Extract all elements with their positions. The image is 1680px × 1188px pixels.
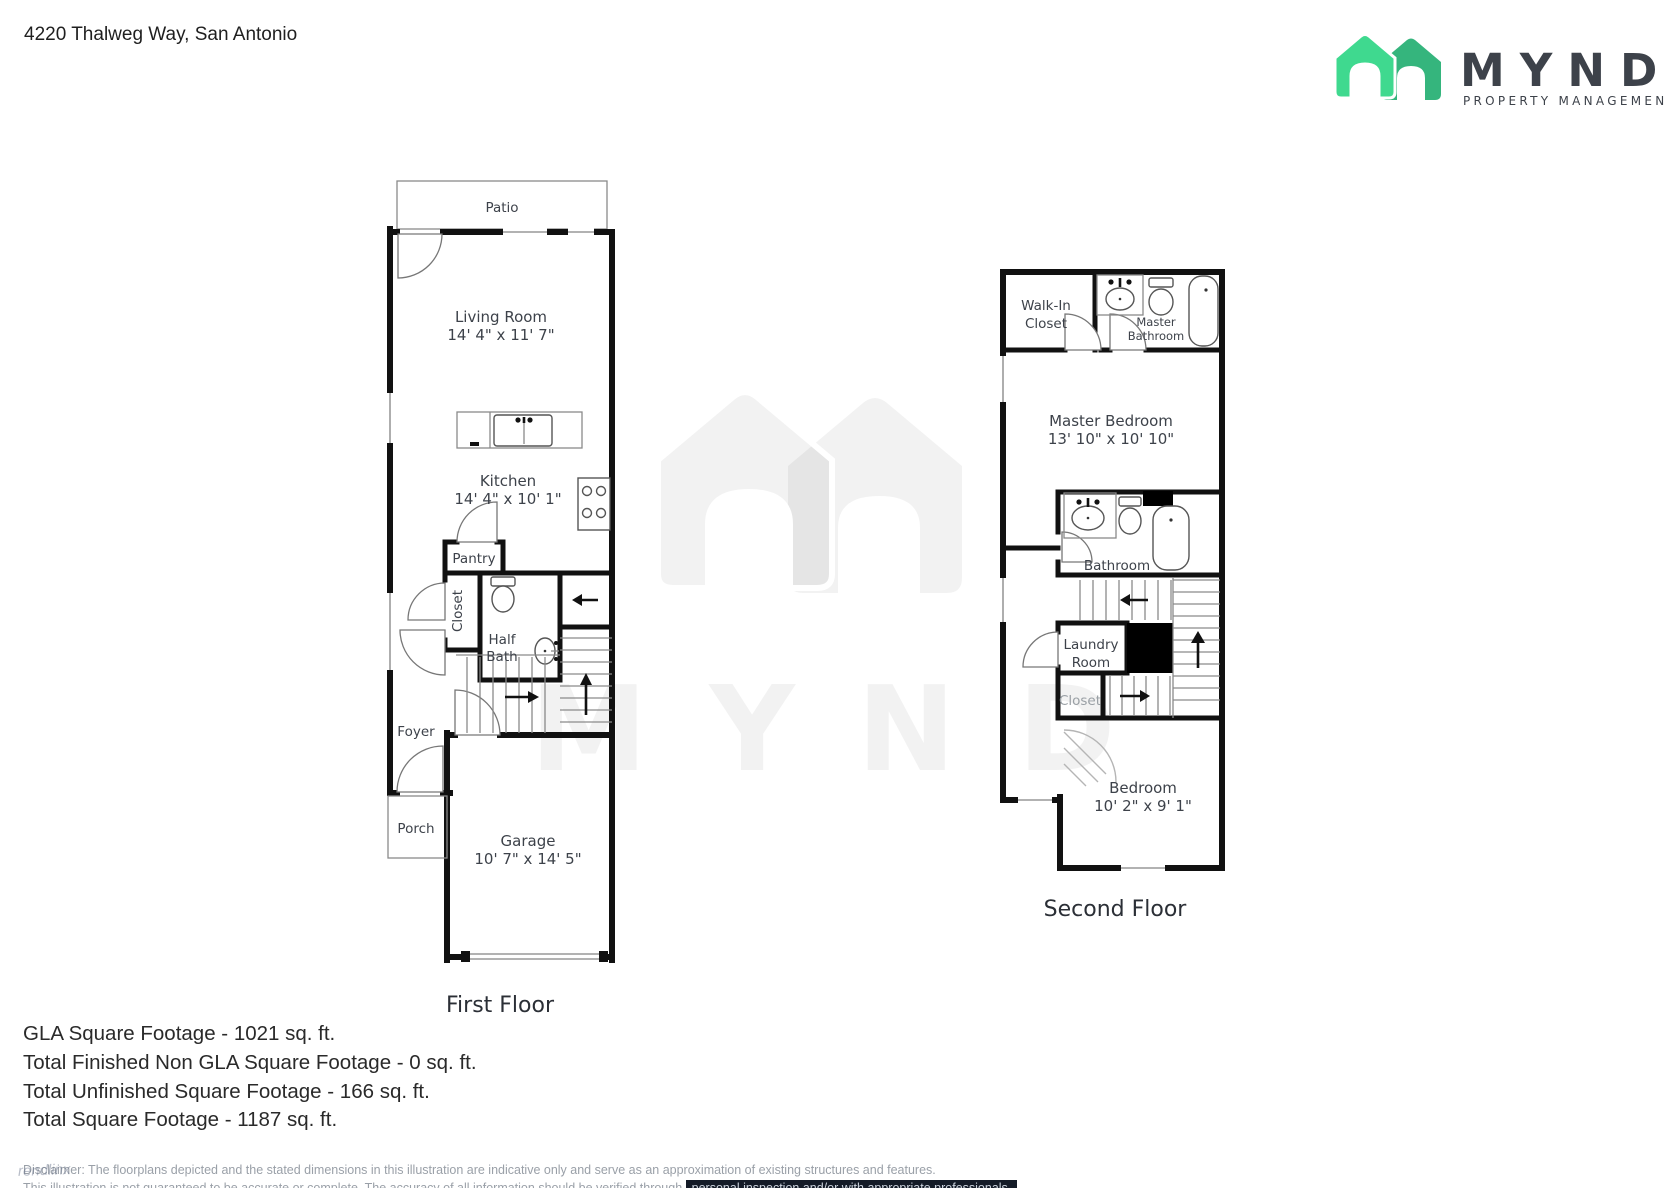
watermark-logo-icon [648, 388, 1028, 613]
first-floor-caption: First Floor [340, 993, 660, 1018]
disclaimer-line2-highlight: personal inspection and/or with appropri… [686, 1180, 1018, 1188]
garage-label: Garage [501, 832, 556, 850]
bedroom-dims: 10' 2" x 9' 1" [1094, 797, 1192, 815]
disclaimer-line1: Disclaimer: The floorplans depicted and … [23, 1163, 1017, 1177]
square-footage-summary: GLA Square Footage - 1021 sq. ft. Total … [23, 1020, 477, 1135]
living-room-dims: 14' 4" x 11' 7" [447, 326, 554, 344]
closet-label: Closet [1059, 693, 1101, 709]
foyer-label: Foyer [397, 724, 435, 740]
arrow-up-icon [1191, 631, 1205, 668]
disclaimer-line2-text: This illustration is not guaranteed to b… [23, 1181, 686, 1188]
bathroom-label: Bathroom [1084, 558, 1150, 574]
closet-label: Closet [450, 590, 466, 632]
master-bedroom-label: Master Bedroom [1049, 412, 1173, 430]
halfbath-sink-icon [535, 638, 559, 664]
kitchen-sink-icon [494, 415, 552, 446]
mynd-logo: MYND PROPERTY MANAGEMENT [1235, 28, 1665, 112]
brand-name: MYND [1460, 44, 1665, 97]
bathroom-tub-icon [1153, 506, 1189, 570]
laundry-room-label-1: Laundry [1063, 637, 1118, 653]
disclaimer: Disclaimer: The floorplans depicted and … [23, 1163, 1017, 1188]
bathroom-toilet-icon [1119, 497, 1141, 534]
half-bath-label-2: Bath [486, 649, 517, 665]
living-room-label: Living Room [455, 308, 547, 326]
bathroom-sink-icon [1064, 493, 1116, 538]
half-bath-label-1: Half [489, 632, 517, 648]
kitchen-dims: 14' 4" x 10' 1" [454, 490, 561, 508]
master-bathroom-label-2: Bathroom [1128, 329, 1184, 343]
logo-houses-icon [1335, 35, 1441, 101]
master-bath-toilet-icon [1149, 278, 1173, 315]
kitchen-label: Kitchen [480, 472, 536, 490]
corner-watermark: rendlinx [18, 1161, 71, 1180]
understair-closet [1064, 730, 1116, 786]
walk-in-closet-label-2: Closet [1025, 316, 1067, 332]
brand-tagline: PROPERTY MANAGEMENT [1463, 94, 1665, 108]
patio-label: Patio [485, 200, 518, 216]
garage-door [461, 950, 608, 963]
master-bath-tub-icon [1189, 276, 1218, 346]
first-floor-plan: Patio [340, 170, 660, 985]
walk-in-closet-label-1: Walk-In [1021, 298, 1071, 314]
property-address: 4220 Thalweg Way, San Antonio [24, 24, 297, 46]
pantry-label: Pantry [452, 551, 495, 567]
master-bathroom-label-1: Master [1136, 315, 1176, 329]
second-floor-plan: Walk-In Closet Master Bathroom Master Be… [980, 240, 1250, 900]
garage-dims: 10' 7" x 14' 5" [474, 850, 581, 868]
arrow-left-icon [1120, 594, 1148, 606]
second-floor-caption: Second Floor [980, 897, 1250, 922]
stove-icon [578, 478, 610, 530]
non-gla-square-footage: Total Finished Non GLA Square Footage - … [23, 1049, 477, 1078]
disclaimer-line2: This illustration is not guaranteed to b… [23, 1181, 1017, 1188]
arrow-up-icon [580, 673, 592, 715]
laundry-room-label-2: Room [1072, 655, 1110, 671]
toilet-icon [491, 577, 515, 612]
master-bedroom-dims: 13' 10" x 10' 10" [1048, 430, 1174, 448]
unfinished-square-footage: Total Unfinished Square Footage - 166 sq… [23, 1078, 477, 1107]
floorplan-page: 4220 Thalweg Way, San Antonio MYND PROPE… [0, 0, 1680, 1188]
bedroom-label: Bedroom [1109, 779, 1177, 797]
arrow-right-icon [505, 691, 539, 703]
bathroom-chase [1143, 491, 1173, 506]
master-bath-sink-icon [1097, 275, 1143, 315]
total-square-footage: Total Square Footage - 1187 sq. ft. [23, 1106, 477, 1135]
porch-label: Porch [397, 821, 434, 837]
stair-chase [1127, 623, 1173, 673]
gla-square-footage: GLA Square Footage - 1021 sq. ft. [23, 1020, 477, 1049]
arrow-left-icon [572, 594, 598, 606]
